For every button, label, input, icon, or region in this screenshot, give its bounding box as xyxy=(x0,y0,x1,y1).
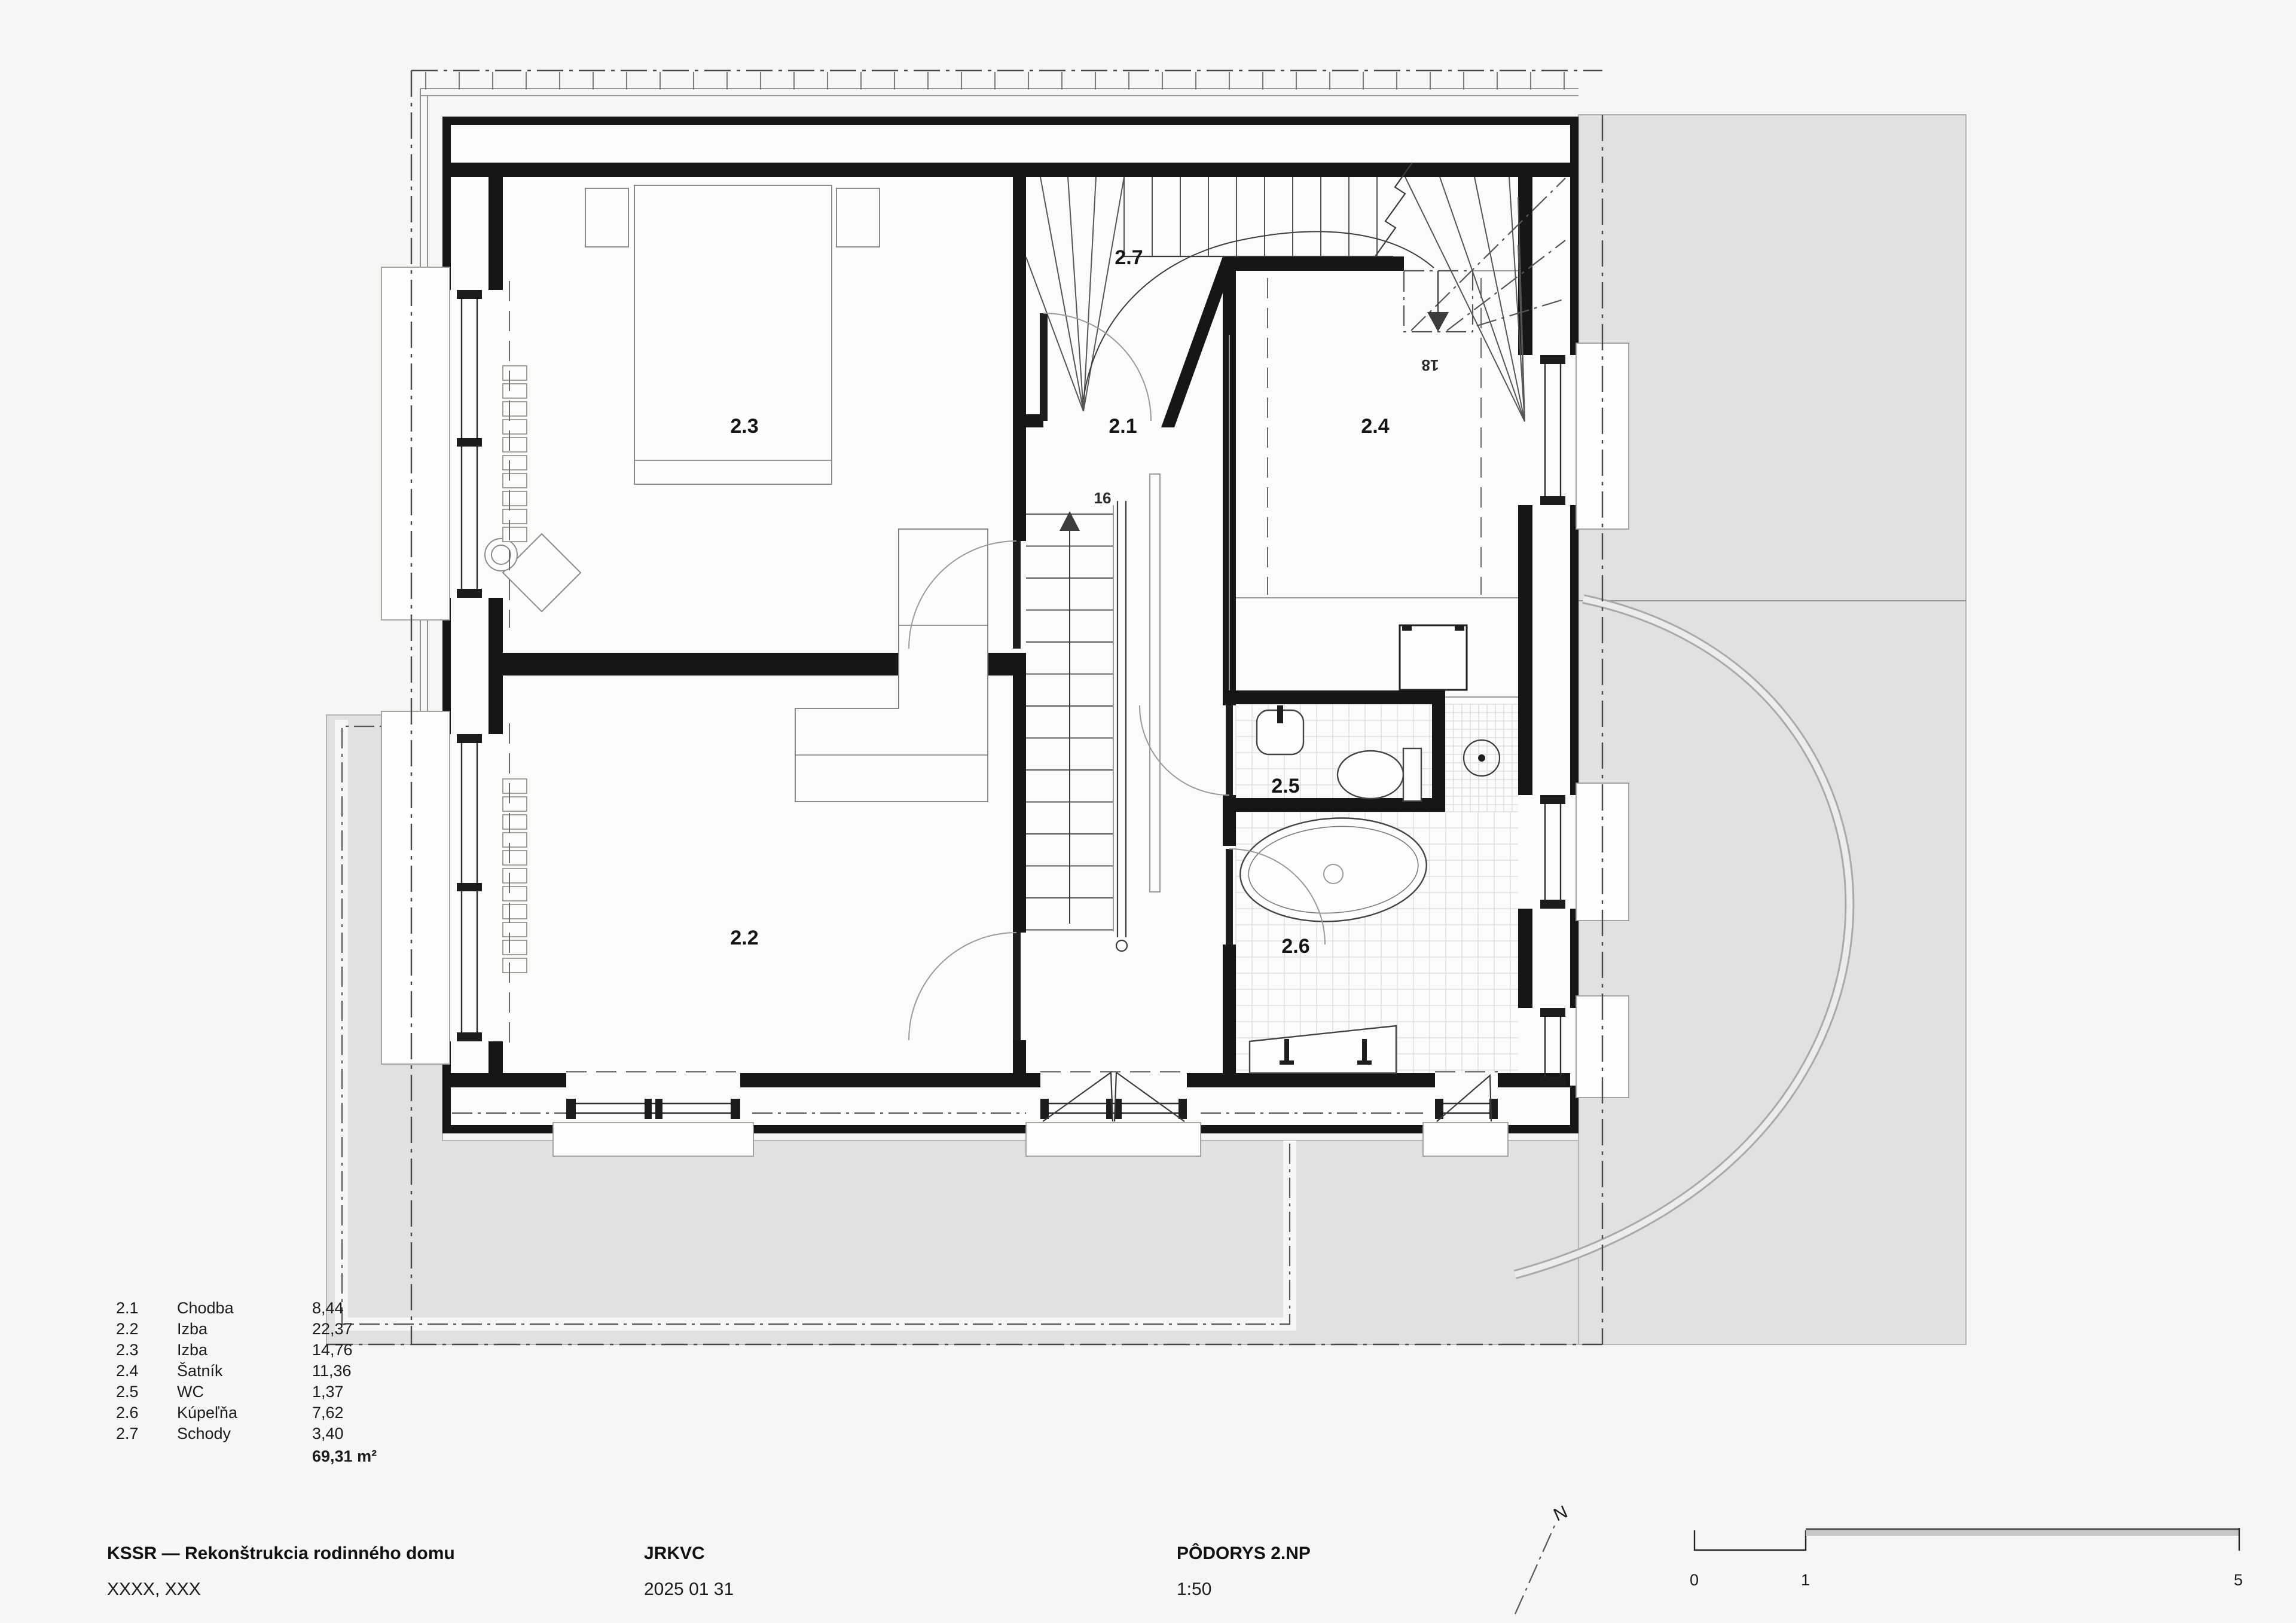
scale-bar: 0 1 5 xyxy=(1690,1528,2243,1589)
drawing-title: PÔDORYS 2.NP xyxy=(1177,1543,1311,1563)
legend-table: 2.1 Chodba 8,44 2.2 Izba 22,37 2.3 Izba … xyxy=(116,1299,377,1465)
scale-tick-0: 0 xyxy=(1690,1571,1699,1589)
room-label-2-5: 2.5 xyxy=(1271,775,1299,797)
legend-area-6: 3,40 xyxy=(312,1425,344,1442)
washing-machine xyxy=(1400,625,1467,690)
room-label-2-1: 2.1 xyxy=(1109,415,1137,438)
door-sill-south xyxy=(1026,1123,1201,1156)
legend-area-5: 7,62 xyxy=(312,1404,344,1422)
room-label-2-6: 2.6 xyxy=(1281,935,1309,958)
legend-area-4: 1,37 xyxy=(312,1383,344,1401)
door-leaf-2-7 xyxy=(1040,313,1048,421)
legend-name-5: Kúpeľňa xyxy=(177,1404,238,1422)
legend-row: 2.7 Schody 3,40 xyxy=(116,1425,344,1442)
north-arrow-line xyxy=(1515,1526,1555,1614)
terrace-edge-path xyxy=(1283,1141,1296,1331)
fence-ticks xyxy=(426,72,1564,90)
scale-tick-5: 5 xyxy=(2234,1571,2243,1589)
nightstand-left xyxy=(585,188,628,247)
drawing-date: 2025 01 31 xyxy=(644,1579,734,1599)
drawing-sheet: 2.1 2.2 2.3 2.4 2.5 2.6 2.7 16 18 2.1 Ch… xyxy=(0,0,2296,1623)
legend-name-4: WC xyxy=(177,1383,204,1401)
north-label: N xyxy=(1550,1502,1570,1525)
project-title: KSSR — Rekonštrukcia rodinného domu xyxy=(107,1543,455,1563)
stair-count-16: 16 xyxy=(1094,489,1112,507)
room-label-2-2: 2.2 xyxy=(730,927,758,949)
room-label-2-7: 2.7 xyxy=(1115,246,1143,269)
door-leaf-wc xyxy=(1226,705,1233,795)
office-name: JRKVC xyxy=(644,1543,705,1563)
legend-row: 2.1 Chodba 8,44 xyxy=(116,1299,344,1317)
nightstand-right xyxy=(836,188,880,247)
legend-row: 2.3 Izba 14,76 xyxy=(116,1341,353,1359)
toilet-bowl xyxy=(1338,751,1403,799)
door-leaf-bath xyxy=(1226,849,1233,945)
floor-lamp-inner xyxy=(491,545,511,564)
legend-area-2: 14,76 xyxy=(312,1341,353,1359)
legend-id-0: 2.1 xyxy=(116,1299,139,1317)
toilet-tank xyxy=(1403,748,1421,801)
north-arrow: N xyxy=(1515,1502,1571,1614)
legend-name-3: Šatník xyxy=(177,1361,223,1380)
legend-name-0: Chodba xyxy=(177,1299,234,1317)
legend-name-2: Izba xyxy=(177,1341,208,1359)
legend-id-4: 2.5 xyxy=(116,1383,139,1401)
legend-area-0: 8,44 xyxy=(312,1299,344,1317)
legend-id-3: 2.4 xyxy=(116,1362,139,1380)
site-area-east xyxy=(1578,115,1966,1344)
window-sill-south-2 xyxy=(1423,1123,1508,1156)
legend-id-6: 2.7 xyxy=(116,1425,139,1442)
stair-count-18: 18 xyxy=(1422,356,1439,374)
wc-sink-tap xyxy=(1277,705,1283,723)
shower-head-center xyxy=(1478,754,1485,762)
door-leaf-2-2 xyxy=(1013,933,1021,1040)
legend-area-3: 11,36 xyxy=(312,1362,352,1380)
legend-id-1: 2.2 xyxy=(116,1320,139,1338)
bed xyxy=(634,185,832,484)
radiator-2 xyxy=(503,779,527,973)
legend-id-5: 2.6 xyxy=(116,1404,139,1422)
legend-total: 69,31 m² xyxy=(312,1447,377,1465)
title-block: KSSR — Rekonštrukcia rodinného domu XXXX… xyxy=(107,1543,1311,1599)
legend-name-6: Schody xyxy=(177,1425,231,1442)
window-sill-west-1 xyxy=(381,267,450,620)
legend-row: 2.4 Šatník 11,36 xyxy=(116,1361,352,1380)
floor-plan-canvas: 2.1 2.2 2.3 2.4 2.5 2.6 2.7 16 18 2.1 Ch… xyxy=(0,0,2296,1623)
room-label-2-4: 2.4 xyxy=(1361,415,1389,438)
legend-name-1: Izba xyxy=(177,1320,208,1338)
project-location: XXXX, XXX xyxy=(107,1579,201,1599)
window-sill-west-2 xyxy=(381,711,450,1064)
window-sill-south-1 xyxy=(553,1123,753,1156)
legend-row: 2.6 Kúpeľňa 7,62 xyxy=(116,1404,344,1422)
legend-row: 2.2 Izba 22,37 xyxy=(116,1320,353,1338)
door-leaf-2-3 xyxy=(1013,541,1021,649)
legend-id-2: 2.3 xyxy=(116,1341,139,1359)
drawing-scale: 1:50 xyxy=(1177,1579,1211,1599)
scale-tick-1: 1 xyxy=(1801,1571,1810,1589)
legend-row: 2.5 WC 1,37 xyxy=(116,1383,344,1401)
room-label-2-3: 2.3 xyxy=(730,415,758,438)
legend-area-1: 22,37 xyxy=(312,1320,353,1338)
scale-bar-band xyxy=(1806,1530,2239,1536)
